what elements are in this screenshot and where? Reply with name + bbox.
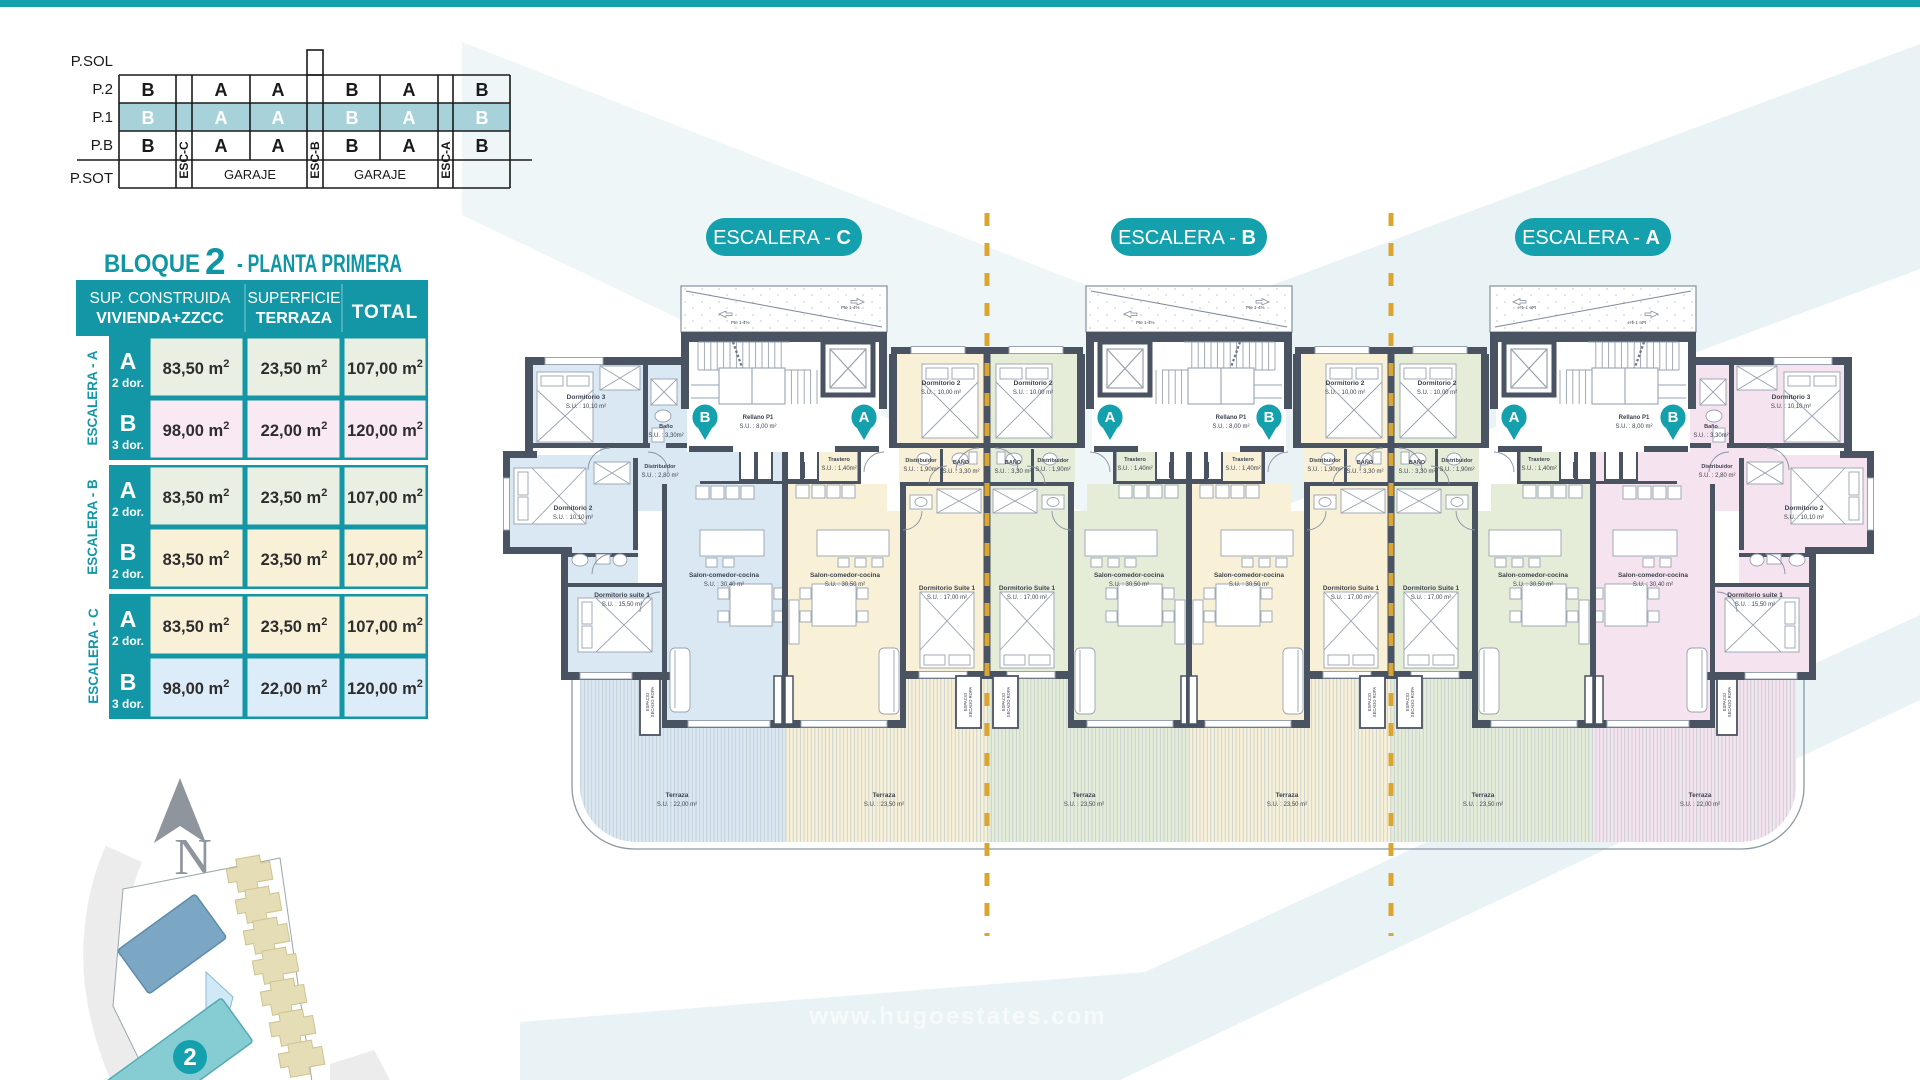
svg-text:B: B bbox=[700, 409, 711, 426]
svg-text:A: A bbox=[1509, 409, 1520, 426]
svg-text:S.U. : 17,00 m²: S.U. : 17,00 m² bbox=[1411, 595, 1451, 601]
svg-text:A: A bbox=[272, 108, 285, 128]
svg-text:B: B bbox=[120, 539, 137, 565]
svg-text:Baño: Baño bbox=[659, 424, 673, 430]
svg-text:B: B bbox=[346, 136, 359, 156]
svg-text:ESCALERA - C: ESCALERA - C bbox=[86, 608, 101, 704]
svg-text:VIVIENDA+ZZCC: VIVIENDA+ZZCC bbox=[96, 310, 224, 327]
svg-text:107,00 m2: 107,00 m2 bbox=[347, 549, 423, 569]
svg-text:S.U. : 2,80 m²: S.U. : 2,80 m² bbox=[1698, 473, 1735, 479]
svg-text:A: A bbox=[272, 136, 285, 156]
svg-text:A: A bbox=[215, 80, 228, 100]
svg-text:P.SOT: P.SOT bbox=[70, 170, 113, 187]
svg-text:S.U. : 22,00 m²: S.U. : 22,00 m² bbox=[1680, 802, 1720, 808]
svg-text:107,00 m2: 107,00 m2 bbox=[347, 616, 423, 636]
svg-text:S.U. : 3,30m²: S.U. : 3,30m² bbox=[648, 433, 683, 439]
svg-text:P.B: P.B bbox=[91, 137, 113, 154]
svg-text:S.U. : 1,90m²: S.U. : 1,90m² bbox=[1307, 467, 1342, 473]
svg-text:Terraza: Terraza bbox=[1689, 792, 1712, 799]
svg-text:A: A bbox=[1105, 409, 1116, 426]
svg-text:S.U. : 30,50 m²: S.U. : 30,50 m² bbox=[1109, 582, 1149, 588]
svg-text:ESCALERA - A: ESCALERA - A bbox=[1522, 227, 1660, 249]
svg-text:B: B bbox=[1668, 409, 1679, 426]
svg-text:2 dor.: 2 dor. bbox=[112, 634, 144, 648]
svg-text:23,50 m2: 23,50 m2 bbox=[261, 487, 328, 507]
svg-text:Salon-comedor-cocina: Salon-comedor-cocina bbox=[689, 572, 759, 579]
svg-text:S.U. : 30,40 m²: S.U. : 30,40 m² bbox=[704, 582, 744, 588]
svg-text:83,50 m2: 83,50 m2 bbox=[163, 616, 230, 636]
svg-text:Rellano P1: Rellano P1 bbox=[743, 415, 774, 421]
svg-text:A: A bbox=[120, 606, 137, 632]
svg-text:Dormitorio Suite 1: Dormitorio Suite 1 bbox=[1323, 585, 1380, 592]
svg-text:Trastero: Trastero bbox=[828, 457, 850, 463]
svg-text:BAÑO: BAÑO bbox=[1357, 459, 1374, 466]
svg-text:Dormitorio Suite 1: Dormitorio Suite 1 bbox=[1403, 585, 1460, 592]
svg-text:B: B bbox=[120, 410, 137, 436]
svg-text:Salon-comedor-cocina: Salon-comedor-cocina bbox=[1214, 572, 1284, 579]
svg-text:B: B bbox=[346, 80, 359, 100]
svg-text:Salon-comedor-cocina: Salon-comedor-cocina bbox=[1618, 572, 1688, 579]
svg-text:Salon-comedor-cocina: Salon-comedor-cocina bbox=[1498, 572, 1568, 579]
svg-text:A: A bbox=[120, 348, 137, 374]
svg-text:A: A bbox=[859, 409, 870, 426]
svg-text:ESCALERA - B: ESCALERA - B bbox=[1118, 227, 1256, 249]
svg-text:S.U. : 3,30 m²: S.U. : 3,30 m² bbox=[994, 469, 1031, 475]
svg-text:S.U. : 10,10 m²: S.U. : 10,10 m² bbox=[566, 404, 606, 410]
svg-text:2 dor.: 2 dor. bbox=[112, 505, 144, 519]
svg-text:A: A bbox=[403, 80, 416, 100]
svg-text:S.U. : 2,80 m²: S.U. : 2,80 m² bbox=[641, 473, 678, 479]
svg-text:B: B bbox=[476, 80, 489, 100]
svg-text:83,50 m2: 83,50 m2 bbox=[163, 549, 230, 569]
svg-text:Dormitorio 2: Dormitorio 2 bbox=[1326, 380, 1365, 387]
svg-text:S.U. : 17,00 m²: S.U. : 17,00 m² bbox=[1007, 595, 1047, 601]
svg-text:22,00 m2: 22,00 m2 bbox=[261, 678, 328, 698]
svg-text:Distribuidor: Distribuidor bbox=[1441, 458, 1473, 464]
svg-text:Dormitorio 2: Dormitorio 2 bbox=[1014, 380, 1053, 387]
svg-text:23,50 m2: 23,50 m2 bbox=[261, 549, 328, 569]
svg-text:2: 2 bbox=[183, 1044, 196, 1071]
svg-text:3 dor.: 3 dor. bbox=[112, 697, 144, 711]
svg-text:P.SOL: P.SOL bbox=[71, 53, 113, 70]
svg-text:Terraza: Terraza bbox=[666, 792, 689, 799]
svg-text:Trastero: Trastero bbox=[1232, 457, 1254, 463]
svg-text:Rellano P1: Rellano P1 bbox=[1619, 415, 1650, 421]
svg-text:S.U. : 3,30 m²: S.U. : 3,30 m² bbox=[942, 469, 979, 475]
svg-text:Dormitorio suite 1: Dormitorio suite 1 bbox=[1727, 592, 1783, 599]
svg-text:TERRAZA: TERRAZA bbox=[256, 310, 333, 327]
svg-text:Dormitorio 2: Dormitorio 2 bbox=[1785, 505, 1824, 512]
svg-text:23,50 m2: 23,50 m2 bbox=[261, 616, 328, 636]
svg-text:BAÑO: BAÑO bbox=[1409, 459, 1426, 466]
svg-text:S.U. : 1,90m²: S.U. : 1,90m² bbox=[903, 467, 938, 473]
svg-text:S.U. : 3,30m²: S.U. : 3,30m² bbox=[1693, 433, 1728, 439]
svg-text:2: 2 bbox=[205, 241, 226, 282]
svg-text:Dormitorio 3: Dormitorio 3 bbox=[1772, 394, 1811, 401]
svg-text:Dormitorio suite 1: Dormitorio suite 1 bbox=[594, 592, 650, 599]
svg-text:S.U. : 22,00 m²: S.U. : 22,00 m² bbox=[657, 802, 697, 808]
svg-text:- PLANTA PRIMERA: - PLANTA PRIMERA bbox=[237, 250, 402, 278]
svg-text:B: B bbox=[476, 108, 489, 128]
svg-text:Baño: Baño bbox=[1704, 424, 1718, 430]
svg-text:S.U. : 1,40m²: S.U. : 1,40m² bbox=[1521, 466, 1556, 472]
svg-text:TOTAL: TOTAL bbox=[352, 302, 419, 323]
svg-text:BAÑO: BAÑO bbox=[1005, 459, 1022, 466]
svg-text:Terraza: Terraza bbox=[1276, 792, 1299, 799]
svg-text:S.U. : 30,50 m²: S.U. : 30,50 m² bbox=[1229, 582, 1269, 588]
svg-text:23,50 m2: 23,50 m2 bbox=[261, 358, 328, 378]
svg-text:ESCALERA - C: ESCALERA - C bbox=[713, 227, 851, 249]
svg-text:S.U. : 23,50 m²: S.U. : 23,50 m² bbox=[1064, 802, 1104, 808]
svg-text:Dormitorio Suite 1: Dormitorio Suite 1 bbox=[999, 585, 1056, 592]
svg-text:Dormitorio Suite 1: Dormitorio Suite 1 bbox=[919, 585, 976, 592]
svg-text:Dormitorio 3: Dormitorio 3 bbox=[567, 394, 606, 401]
svg-text:S.U. : 17,00 m²: S.U. : 17,00 m² bbox=[1331, 595, 1371, 601]
svg-text:S.U. : 3,30 m²: S.U. : 3,30 m² bbox=[1346, 469, 1383, 475]
svg-text:2 dor.: 2 dor. bbox=[112, 376, 144, 390]
svg-text:Distribuidor: Distribuidor bbox=[1037, 458, 1069, 464]
svg-text:98,00 m2: 98,00 m2 bbox=[163, 420, 230, 440]
svg-text:B: B bbox=[476, 136, 489, 156]
svg-text:S.U. : 10,00 m²: S.U. : 10,00 m² bbox=[1325, 390, 1365, 396]
svg-text:S.U. : 23,50 m²: S.U. : 23,50 m² bbox=[864, 802, 904, 808]
svg-text:ESCALERA - B: ESCALERA - B bbox=[85, 479, 100, 575]
svg-text:GARAJE: GARAJE bbox=[354, 167, 406, 182]
svg-text:ESC-A: ESC-A bbox=[439, 141, 453, 179]
svg-text:B: B bbox=[142, 136, 155, 156]
svg-text:83,50 m2: 83,50 m2 bbox=[163, 487, 230, 507]
svg-text:GARAJE: GARAJE bbox=[224, 167, 276, 182]
svg-text:107,00 m2: 107,00 m2 bbox=[347, 358, 423, 378]
svg-text:83,50 m2: 83,50 m2 bbox=[163, 358, 230, 378]
svg-text:S.U. : 1,40m²: S.U. : 1,40m² bbox=[1117, 466, 1152, 472]
svg-text:Rellano P1: Rellano P1 bbox=[1216, 415, 1247, 421]
svg-text:BAÑO: BAÑO bbox=[953, 459, 970, 466]
svg-text:S.U. : 10,00 m²: S.U. : 10,00 m² bbox=[1417, 390, 1457, 396]
svg-text:SUP. CONSTRUIDA: SUP. CONSTRUIDA bbox=[90, 290, 232, 307]
svg-text:B: B bbox=[346, 108, 359, 128]
svg-text:S.U. : 30,50 m²: S.U. : 30,50 m² bbox=[1513, 582, 1553, 588]
svg-text:S.U. : 15,50 m²: S.U. : 15,50 m² bbox=[1735, 602, 1775, 608]
svg-text:Trastero: Trastero bbox=[1124, 457, 1146, 463]
svg-text:B: B bbox=[142, 108, 155, 128]
svg-text:BLOQUE: BLOQUE bbox=[104, 250, 200, 278]
svg-text:Salon-comedor-cocina: Salon-comedor-cocina bbox=[810, 572, 880, 579]
svg-text:P.2: P.2 bbox=[92, 81, 113, 98]
svg-text:ESCALERA - A: ESCALERA - A bbox=[85, 350, 100, 445]
svg-text:S.U. : 23,50 m²: S.U. : 23,50 m² bbox=[1463, 802, 1503, 808]
svg-text:A: A bbox=[272, 80, 285, 100]
svg-text:Salon-comedor-cocina: Salon-comedor-cocina bbox=[1094, 572, 1164, 579]
svg-text:S.U. : 1,40m²: S.U. : 1,40m² bbox=[821, 466, 856, 472]
svg-text:Dormitorio 2: Dormitorio 2 bbox=[554, 505, 593, 512]
svg-text:B: B bbox=[1264, 409, 1275, 426]
svg-text:S.U. : 10,10 m²: S.U. : 10,10 m² bbox=[553, 515, 593, 521]
svg-text:Terraza: Terraza bbox=[1472, 792, 1495, 799]
svg-text:3 dor.: 3 dor. bbox=[112, 438, 144, 452]
svg-text:A: A bbox=[215, 136, 228, 156]
svg-text:P.1: P.1 bbox=[92, 109, 113, 126]
svg-text:S.U. : 1,90m²: S.U. : 1,90m² bbox=[1035, 467, 1070, 473]
svg-text:S.U. : 30,40 m²: S.U. : 30,40 m² bbox=[1633, 582, 1673, 588]
svg-text:A: A bbox=[403, 136, 416, 156]
svg-text:B: B bbox=[142, 80, 155, 100]
svg-text:S.U. : 1,40m²: S.U. : 1,40m² bbox=[1225, 466, 1260, 472]
svg-text:98,00 m2: 98,00 m2 bbox=[163, 678, 230, 698]
svg-text:120,00 m2: 120,00 m2 bbox=[347, 678, 423, 698]
svg-text:120,00 m2: 120,00 m2 bbox=[347, 420, 423, 440]
svg-text:S.U. : 1,90m²: S.U. : 1,90m² bbox=[1439, 467, 1474, 473]
svg-text:S.U. : 10,10 m²: S.U. : 10,10 m² bbox=[1771, 404, 1811, 410]
svg-text:Terraza: Terraza bbox=[873, 792, 896, 799]
svg-text:107,00 m2: 107,00 m2 bbox=[347, 487, 423, 507]
svg-text:S.U. : 8,00 m²: S.U. : 8,00 m² bbox=[1615, 424, 1652, 430]
svg-text:S.U. : 15,50 m²: S.U. : 15,50 m² bbox=[602, 602, 642, 608]
svg-text:Distribuidor: Distribuidor bbox=[644, 464, 676, 470]
svg-text:A: A bbox=[215, 108, 228, 128]
svg-text:S.U. : 30,50 m²: S.U. : 30,50 m² bbox=[825, 582, 865, 588]
svg-text:S.U. : 10,00 m²: S.U. : 10,00 m² bbox=[921, 390, 961, 396]
svg-text:ESC-C: ESC-C bbox=[177, 141, 191, 179]
svg-text:SUPERFICIE: SUPERFICIE bbox=[247, 290, 340, 307]
svg-text:Terraza: Terraza bbox=[1073, 792, 1096, 799]
svg-text:Distribuidor: Distribuidor bbox=[1309, 458, 1341, 464]
svg-text:S.U. : 10,00 m²: S.U. : 10,00 m² bbox=[1013, 390, 1053, 396]
svg-text:S.U. : 3,30 m²: S.U. : 3,30 m² bbox=[1398, 469, 1435, 475]
svg-text:Dormitorio 2: Dormitorio 2 bbox=[922, 380, 961, 387]
svg-text:Trastero: Trastero bbox=[1528, 457, 1550, 463]
svg-text:S.U. : 23,50 m²: S.U. : 23,50 m² bbox=[1267, 802, 1307, 808]
svg-text:Dormitorio 2: Dormitorio 2 bbox=[1418, 380, 1457, 387]
svg-text:www.hugoestates.com: www.hugoestates.com bbox=[808, 1003, 1106, 1030]
svg-text:S.U. : 8,00 m²: S.U. : 8,00 m² bbox=[1212, 424, 1249, 430]
svg-text:Distribuidor: Distribuidor bbox=[905, 458, 937, 464]
svg-text:22,00 m2: 22,00 m2 bbox=[261, 420, 328, 440]
svg-text:S.U. : 10,10 m²: S.U. : 10,10 m² bbox=[1784, 515, 1824, 521]
svg-text:S.U. : 17,00 m²: S.U. : 17,00 m² bbox=[927, 595, 967, 601]
svg-text:A: A bbox=[403, 108, 416, 128]
svg-text:S.U. : 8,00 m²: S.U. : 8,00 m² bbox=[739, 424, 776, 430]
svg-text:2 dor.: 2 dor. bbox=[112, 567, 144, 581]
svg-text:Distribuidor: Distribuidor bbox=[1701, 464, 1733, 470]
svg-text:B: B bbox=[120, 669, 137, 695]
svg-text:A: A bbox=[120, 477, 137, 503]
svg-text:ESC-B: ESC-B bbox=[308, 141, 322, 179]
